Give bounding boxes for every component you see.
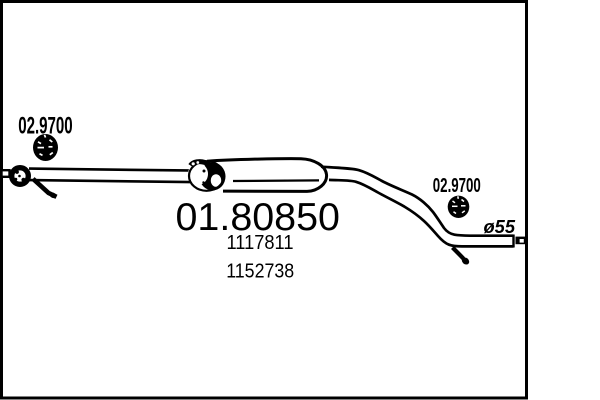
svg-text:1152738: 1152738: [226, 261, 294, 283]
svg-text:1117811: 1117811: [227, 232, 294, 254]
svg-text:ø55: ø55: [484, 216, 516, 237]
svg-text:02.9700: 02.9700: [433, 175, 481, 197]
